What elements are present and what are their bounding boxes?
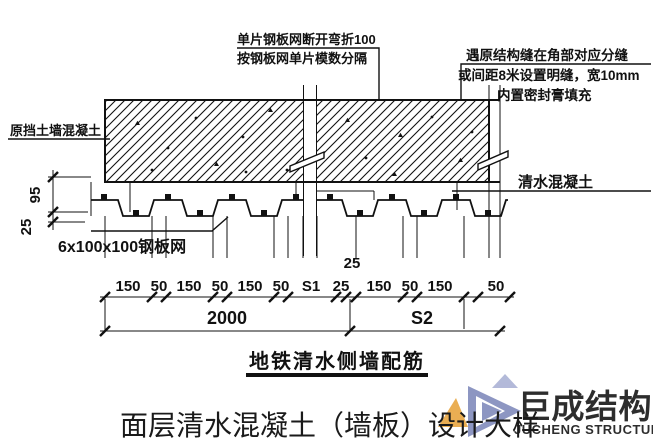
dim-seg: 150 xyxy=(176,278,201,295)
joint-note-line1: 遇原结构缝在角部对应分缝 xyxy=(466,47,628,63)
drawing-caption: 地铁清水侧墙配筋 xyxy=(249,349,425,373)
left-dimension: 95 25 xyxy=(18,170,91,235)
drawing-title: 面层清水混凝土（墙板）设计大样 xyxy=(120,410,540,442)
dim-seg-s1: S1 xyxy=(302,278,320,295)
steel-mesh-label: 6x100x100钢板网 xyxy=(58,237,186,256)
steel-mesh-profile xyxy=(91,182,508,216)
mesh-break-note-line2: 按钢板网单片模数分隔 xyxy=(237,51,367,66)
caption-underline xyxy=(246,373,428,377)
dim-seg: 150 xyxy=(237,278,262,295)
dim-seg: 150 xyxy=(427,278,452,295)
dim-seg: 50 xyxy=(151,278,168,295)
dim-total-s2: S2 xyxy=(411,308,433,328)
dim-seg-raised-25: 25 xyxy=(344,255,361,272)
dim-95: 95 xyxy=(27,187,44,204)
dim-seg: 50 xyxy=(488,278,505,295)
dimension-row-2: 2000 S2 xyxy=(100,299,505,336)
drawing-sheet: 95 25 150 50 150 50 150 50 S1 25 25 150 … xyxy=(0,0,653,448)
dim-seg: 50 xyxy=(212,278,229,295)
dimension-row-1: 150 50 150 50 150 50 S1 25 25 150 50 150… xyxy=(100,255,515,302)
detail-drawing-canvas: 95 25 150 50 150 50 150 50 S1 25 25 150 … xyxy=(0,0,653,448)
dim-seg: 150 xyxy=(115,278,140,295)
dim-total-2000: 2000 xyxy=(207,308,247,328)
logo-mark-upper-triangle xyxy=(492,374,518,388)
joint-note-line3: 内置密封膏填充 xyxy=(497,87,592,103)
dim-seg: 50 xyxy=(402,278,419,295)
retaining-wall-label: 原挡土墙混凝土 xyxy=(10,123,101,138)
fair-faced-concrete-label: 清水混凝土 xyxy=(518,173,593,191)
middle-joint-band xyxy=(304,85,317,256)
dim-seg: 150 xyxy=(366,278,391,295)
dim-25-left: 25 xyxy=(18,219,35,236)
mesh-break-note-line1: 单片钢板网断开弯折100 xyxy=(237,32,376,47)
dim-seg: 25 xyxy=(333,278,350,295)
joint-note-line2: 或间距8米设置明缝，宽10mm xyxy=(458,67,640,83)
dim-seg: 50 xyxy=(273,278,290,295)
